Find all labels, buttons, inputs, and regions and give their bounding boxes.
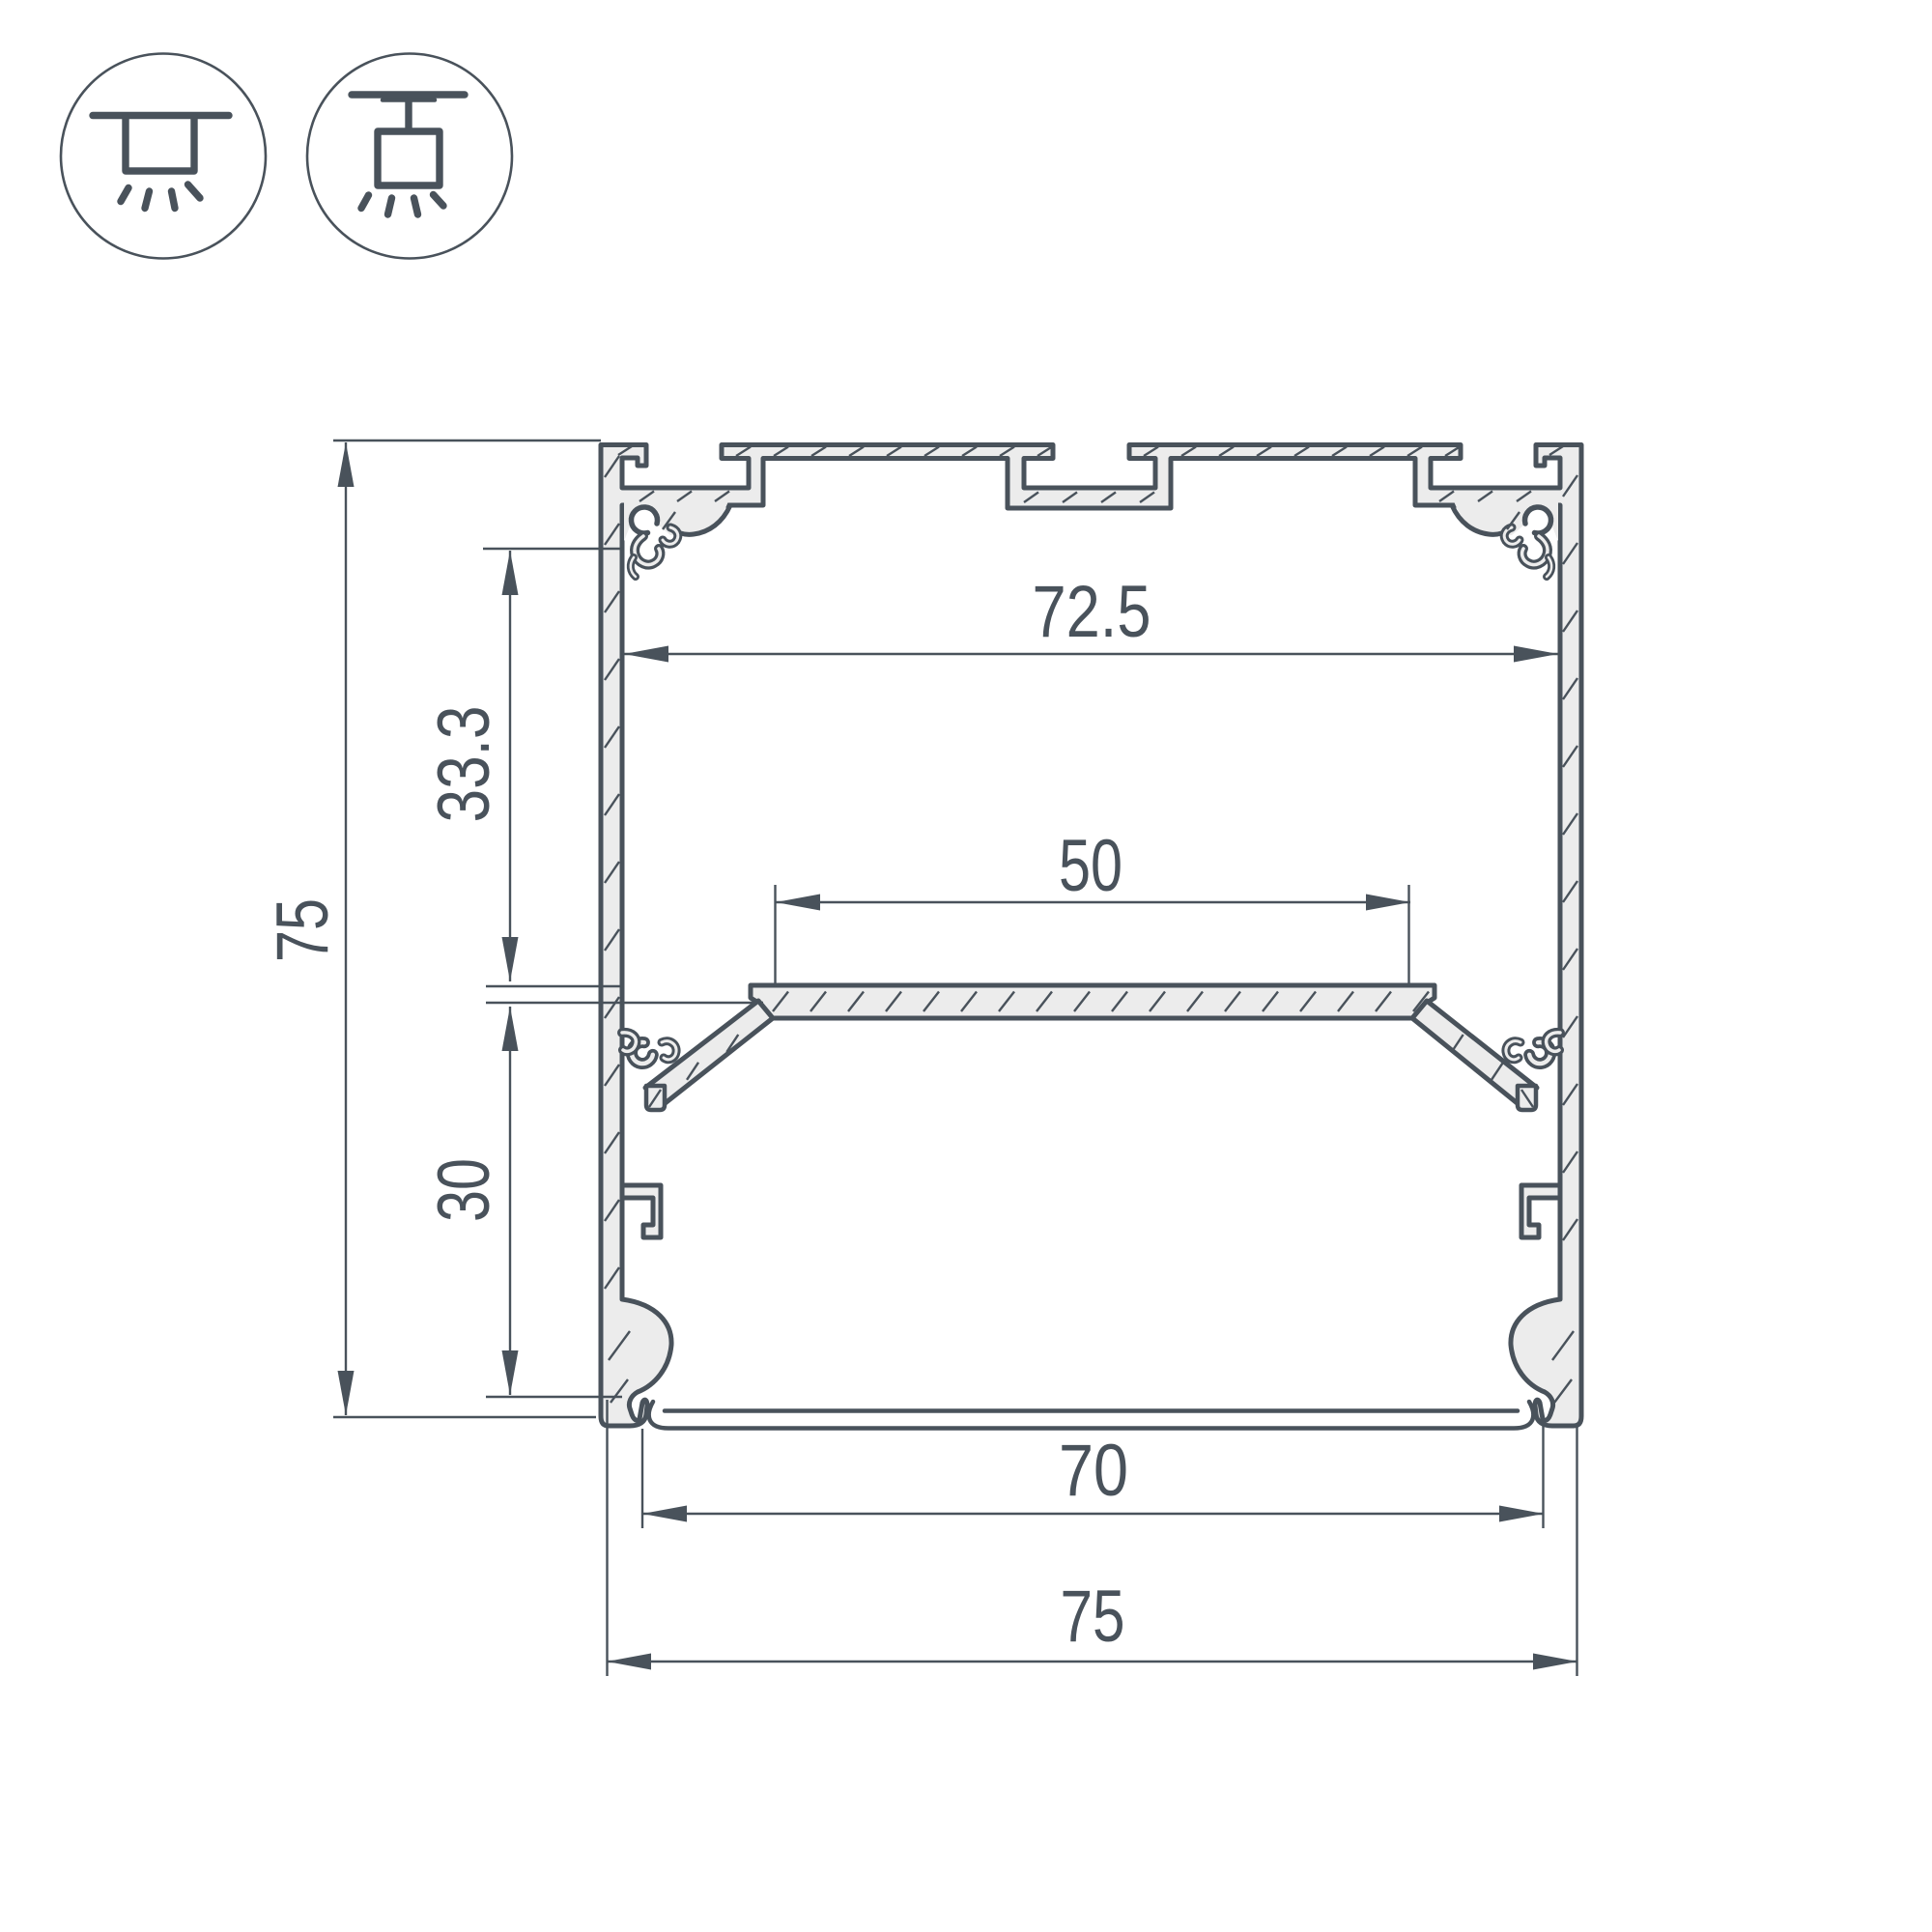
svg-text:75: 75 [1061, 1576, 1125, 1658]
svg-text:33.3: 33.3 [423, 706, 505, 823]
svg-text:72.5: 72.5 [1033, 571, 1151, 653]
svg-text:75: 75 [262, 898, 344, 962]
svg-text:50: 50 [1059, 825, 1122, 907]
svg-text:70: 70 [1059, 1430, 1128, 1512]
svg-text:30: 30 [423, 1158, 505, 1222]
